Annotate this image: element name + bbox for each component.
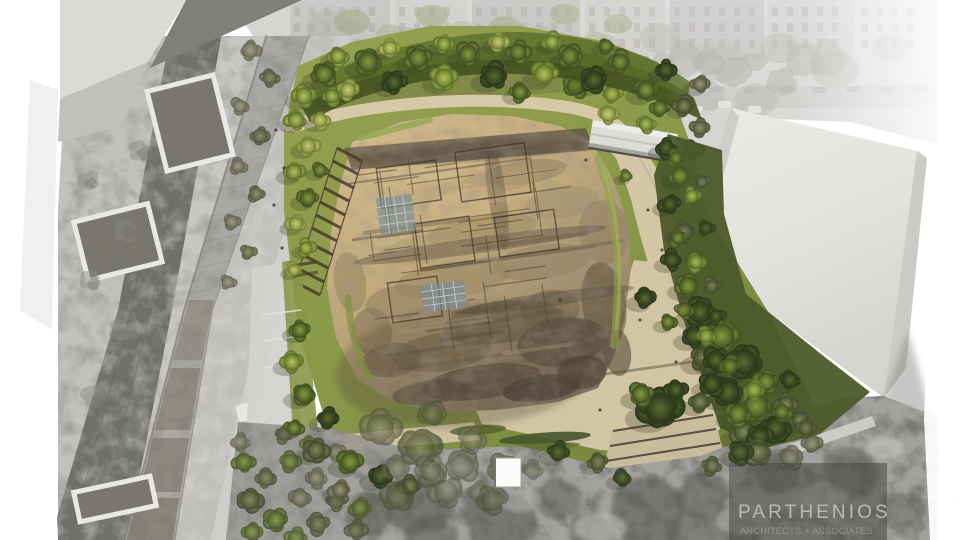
svg-text:PARTHENIOS: PARTHENIOS [738,502,891,523]
svg-text:ARCHITECTS + ASSOCIATES: ARCHITECTS + ASSOCIATES [740,526,873,536]
